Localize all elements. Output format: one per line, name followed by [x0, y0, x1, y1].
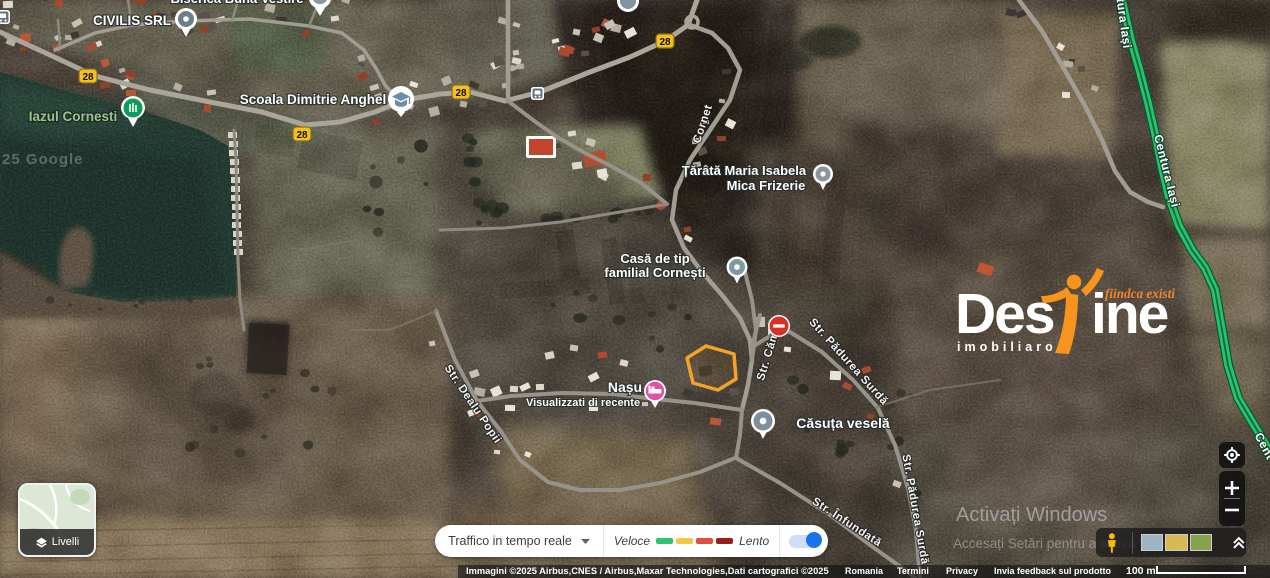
svg-text:Casă de tip: Casă de tip — [620, 251, 689, 266]
svg-text:imobiliaro: imobiliaro — [957, 340, 1057, 354]
svg-text:Activați Windows: Activați Windows — [956, 504, 1107, 526]
svg-text:28: 28 — [659, 37, 671, 48]
svg-text:CIVILIS SRL: CIVILIS SRL — [93, 13, 171, 28]
svg-text:Căsuța veselă: Căsuța veselă — [796, 415, 890, 431]
svg-text:Scoala Dimitrie Anghel: Scoala Dimitrie Anghel — [240, 92, 387, 107]
svg-text:fiindca existi: fiindca existi — [1105, 286, 1175, 301]
svg-text:Visualizzati di recente: Visualizzati di recente — [526, 397, 640, 409]
svg-text:familial Cornești: familial Cornești — [604, 265, 705, 280]
svg-text:Nașu: Nașu — [608, 379, 642, 395]
svg-text:28: 28 — [296, 130, 308, 141]
svg-text:Biserica Buna Vestire: Biserica Buna Vestire — [171, 0, 304, 6]
svg-text:28: 28 — [455, 88, 467, 99]
svg-text:Țărâtă Maria Isabela: Țărâtă Maria Isabela — [682, 163, 807, 178]
svg-text:Mica Frizerie: Mica Frizerie — [727, 178, 806, 193]
svg-text:28: 28 — [82, 72, 94, 83]
svg-text:Des: Des — [955, 282, 1054, 346]
svg-text:Iazul Cornesti: Iazul Cornesti — [29, 109, 118, 124]
svg-text:25 Google: 25 Google — [2, 151, 84, 168]
